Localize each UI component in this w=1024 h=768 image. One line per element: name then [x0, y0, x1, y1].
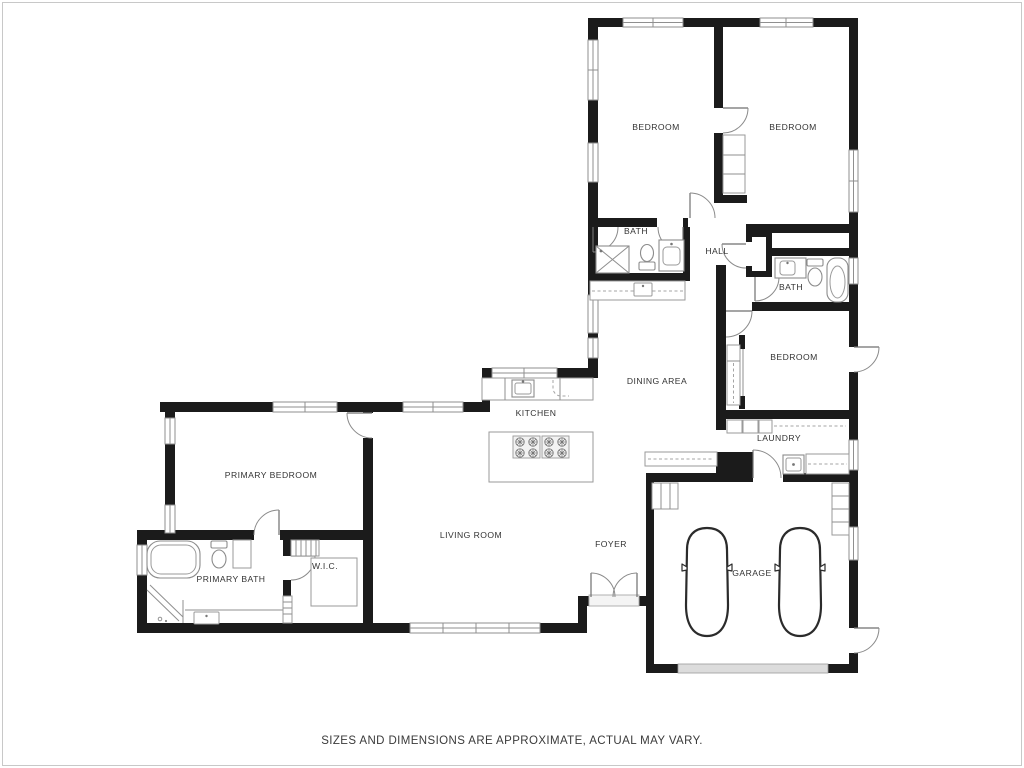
- room-label-living-room: LIVING ROOM: [440, 530, 502, 540]
- window: [137, 545, 147, 575]
- wic-side-shelves: [283, 596, 292, 623]
- floor-plan-image: BEDROOM BEDROOM BATH HALL BATH BEDROOM D…: [0, 0, 1024, 768]
- room-label-wic: W.I.C.: [312, 561, 338, 571]
- toilet-bath-2: [807, 259, 823, 286]
- window: [588, 143, 598, 182]
- door-bath-2: [755, 277, 779, 301]
- window: [623, 18, 683, 27]
- toilet-primary: [211, 541, 227, 568]
- door-laundry: [753, 450, 781, 478]
- room-label-garage: GARAGE: [732, 568, 771, 578]
- room-label-primary-bedroom: PRIMARY BEDROOM: [225, 470, 317, 480]
- door-garage-exterior: [849, 628, 879, 653]
- room-label-bedroom-1: BEDROOM: [632, 122, 680, 132]
- shower-primary: [147, 585, 183, 623]
- room-label-bath-2: BATH: [779, 282, 803, 292]
- garage-storage: [652, 483, 678, 509]
- counter-kitchen-north: [590, 281, 685, 300]
- door-wic: [283, 556, 315, 580]
- room-label-bedroom-3: BEDROOM: [770, 352, 818, 362]
- window: [165, 418, 175, 444]
- window: [588, 40, 598, 100]
- sink-bath-2: [775, 258, 806, 278]
- car-1-icon: [682, 528, 732, 636]
- window: [849, 527, 858, 560]
- door-primary-bath: [254, 510, 280, 540]
- window: [849, 440, 858, 470]
- room-label-primary-bath: PRIMARY BATH: [197, 574, 266, 584]
- laundry-shelves: [727, 420, 846, 433]
- kitchen-sink: [512, 380, 534, 397]
- bathtub-bath-2: [827, 258, 848, 302]
- toilet-bath-1: [639, 245, 655, 271]
- entry-double-door: [589, 573, 639, 606]
- room-label-bedroom-2: BEDROOM: [769, 122, 817, 132]
- door-bedroom-1: [690, 193, 715, 218]
- window: [760, 18, 813, 27]
- window: [273, 402, 337, 412]
- window: [403, 402, 463, 412]
- kitchen-counter: [482, 378, 593, 400]
- disclaimer-text: SIZES AND DIMENSIONS ARE APPROXIMATE, AC…: [321, 735, 703, 747]
- shower-bath-1: [596, 246, 629, 273]
- window: [849, 258, 858, 284]
- car-2-icon: [775, 528, 825, 636]
- window: [492, 368, 557, 378]
- door-bedroom-3-exterior: [849, 347, 879, 372]
- dining-counter: [645, 452, 717, 466]
- room-label-foyer: FOYER: [595, 539, 627, 549]
- room-label-bath-1: BATH: [624, 226, 648, 236]
- door-primary-bedroom: [347, 413, 373, 438]
- room-label-kitchen: KITCHEN: [516, 408, 557, 418]
- window: [849, 150, 858, 212]
- window: [588, 338, 598, 358]
- room-label-hall: HALL: [705, 246, 728, 256]
- kitchen-island: [489, 432, 593, 482]
- floor-plan-page: BEDROOM BEDROOM BATH HALL BATH BEDROOM D…: [0, 0, 1024, 768]
- bathtub-primary: [147, 541, 200, 578]
- door-bedroom-3: [726, 302, 752, 337]
- garage-shelving: [832, 483, 849, 535]
- door-bedroom-2: [714, 108, 748, 133]
- laundry-counter: [806, 454, 849, 474]
- room-label-dining-area: DINING AREA: [627, 376, 687, 386]
- room-label-laundry: LAUNDRY: [757, 433, 801, 443]
- window: [588, 295, 598, 333]
- washer: [783, 455, 804, 474]
- vanity-primary-bath: [185, 610, 283, 624]
- cabinet-primary-bath: [233, 540, 251, 568]
- wic-linen-shelves: [291, 540, 319, 556]
- window: [165, 505, 175, 533]
- closet-bedroom-2: [723, 135, 745, 193]
- sink-bath-1: [659, 240, 684, 271]
- window: [410, 623, 540, 633]
- garage-vehicle-door: [678, 664, 828, 673]
